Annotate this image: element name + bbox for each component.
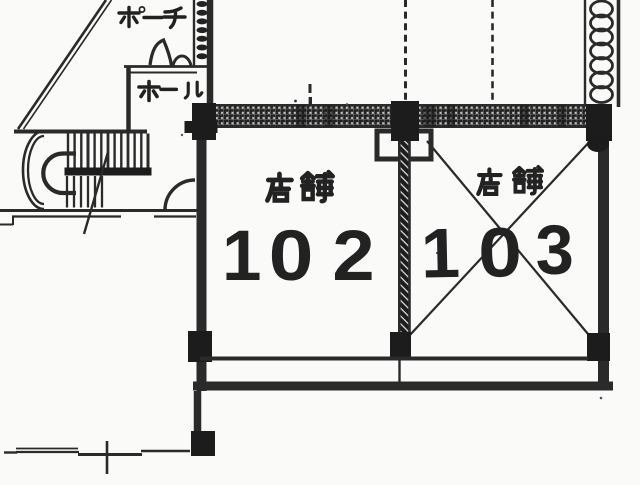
svg-text:3: 3: [535, 210, 575, 290]
svg-text:2: 2: [332, 215, 374, 295]
svg-text:1: 1: [222, 217, 262, 296]
svg-text:0: 0: [477, 213, 522, 292]
svg-text:0: 0: [269, 216, 314, 296]
svg-text:1: 1: [420, 214, 461, 293]
